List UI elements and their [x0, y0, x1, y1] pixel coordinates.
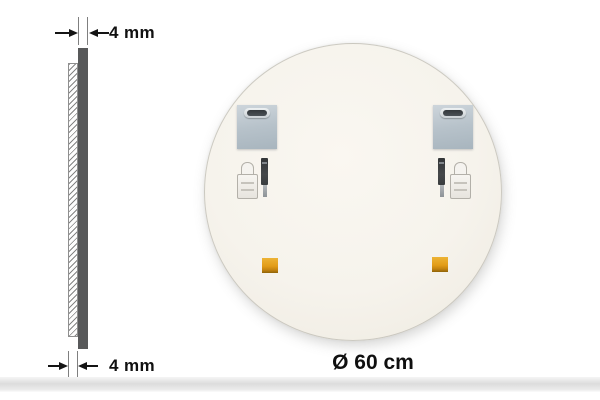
- pen-band: [262, 162, 267, 164]
- mirror-side-profile-glass: [78, 48, 88, 349]
- adhesive-pad-right: [432, 257, 448, 272]
- adhesive-pad-left: [262, 258, 278, 273]
- hanging-plate-right: [433, 105, 473, 149]
- anchor-body: [450, 174, 471, 199]
- dimension-arrowhead: [69, 29, 78, 37]
- dimension-arrow-line: [85, 365, 98, 367]
- hanging-plate-left: [237, 105, 277, 149]
- anchor-detail-line: [454, 189, 467, 191]
- anchor-detail-line: [241, 189, 254, 191]
- keyhole-slot: [440, 108, 466, 118]
- pen-tip: [440, 185, 444, 197]
- hardware-anchor-left: [237, 162, 258, 199]
- thickness-label-bottom: 4 mm: [109, 356, 155, 376]
- pen-band: [439, 162, 444, 164]
- mirror-side-profile-hatch: [68, 63, 78, 337]
- floor-shadow-band: [0, 377, 600, 392]
- pen-tip: [263, 185, 267, 197]
- hardware-pen-right: [438, 158, 445, 197]
- hardware-anchor-right: [450, 162, 471, 199]
- keyhole-slot-hole: [443, 110, 463, 116]
- anchor-detail-line: [454, 182, 467, 184]
- keyhole-slot-hole: [247, 110, 267, 116]
- dimension-arrow-line: [96, 32, 109, 34]
- extension-line: [87, 17, 88, 45]
- anchor-body: [237, 174, 258, 199]
- hardware-pen-left: [261, 158, 268, 197]
- anchor-detail-line: [241, 182, 254, 184]
- keyhole-slot: [244, 108, 270, 118]
- dimension-arrowhead: [59, 362, 68, 370]
- mirror-product-diagram: 4 mm 4 mm: [0, 0, 600, 400]
- diameter-label: Ø 60 cm: [307, 351, 439, 375]
- dimension-arrow-line: [55, 32, 70, 34]
- extension-line: [78, 17, 79, 45]
- thickness-label-top: 4 mm: [109, 23, 155, 43]
